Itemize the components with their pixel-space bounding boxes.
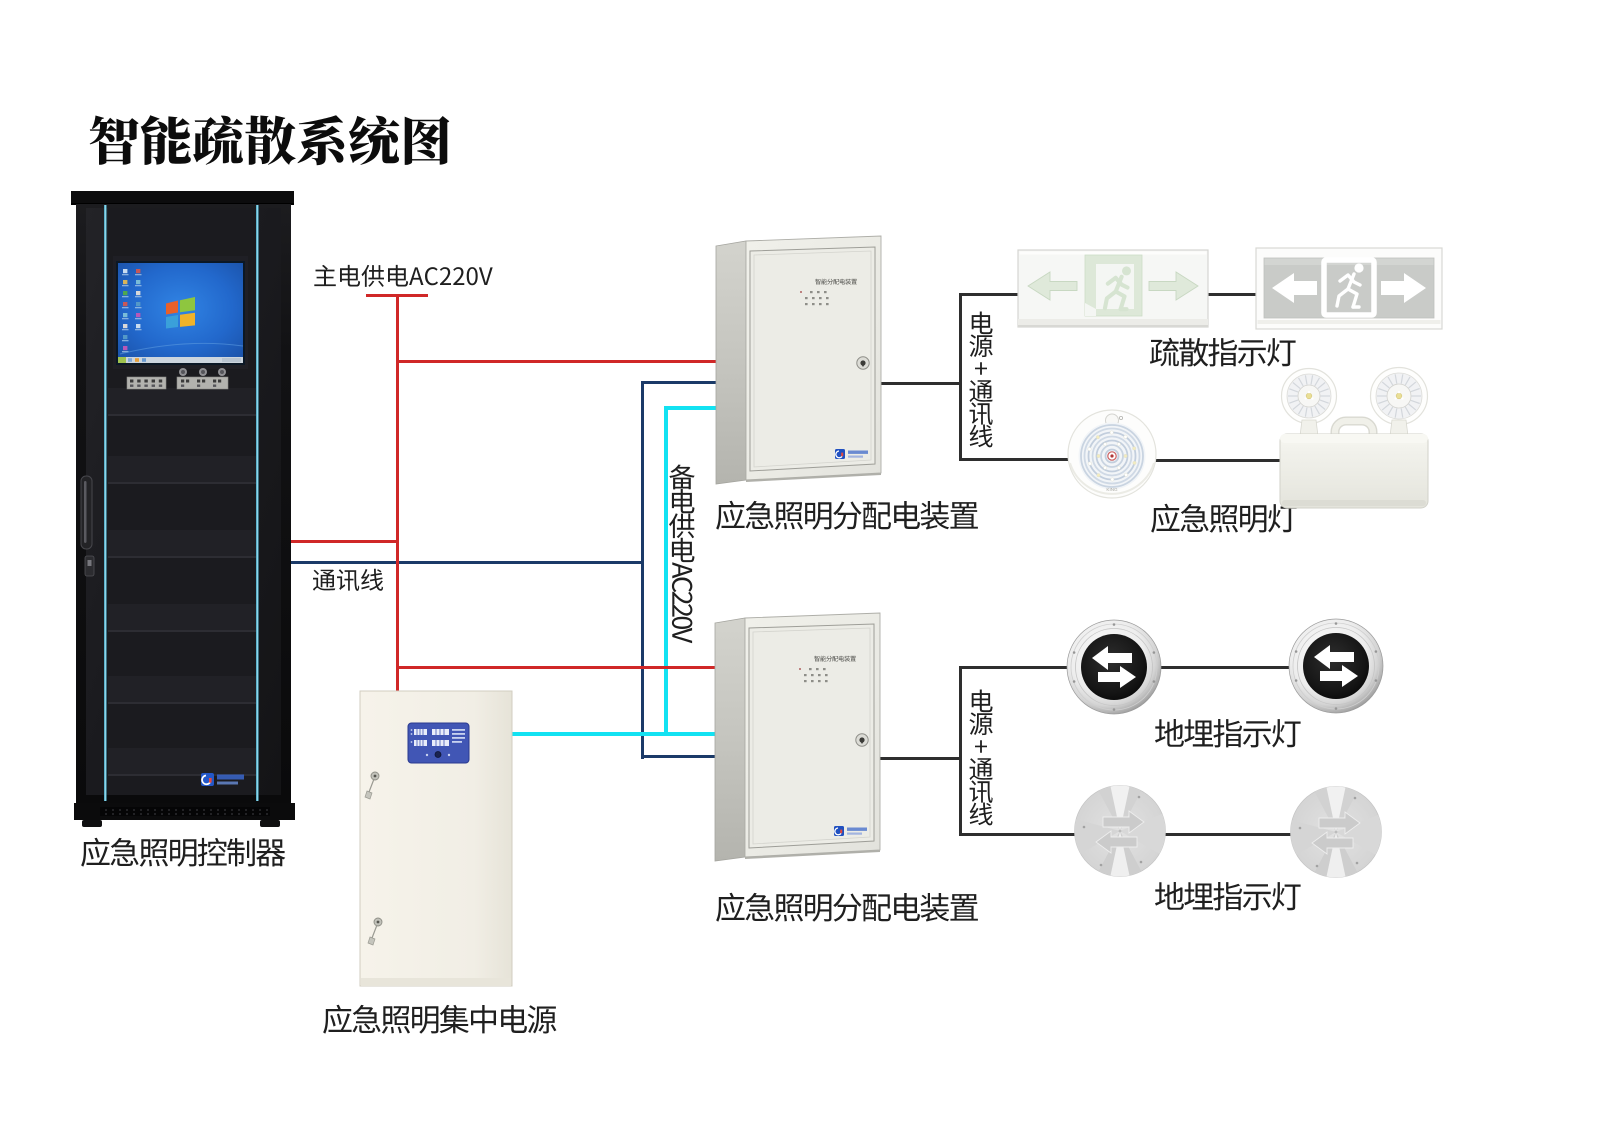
svg-text:KING: KING — [1106, 487, 1118, 492]
